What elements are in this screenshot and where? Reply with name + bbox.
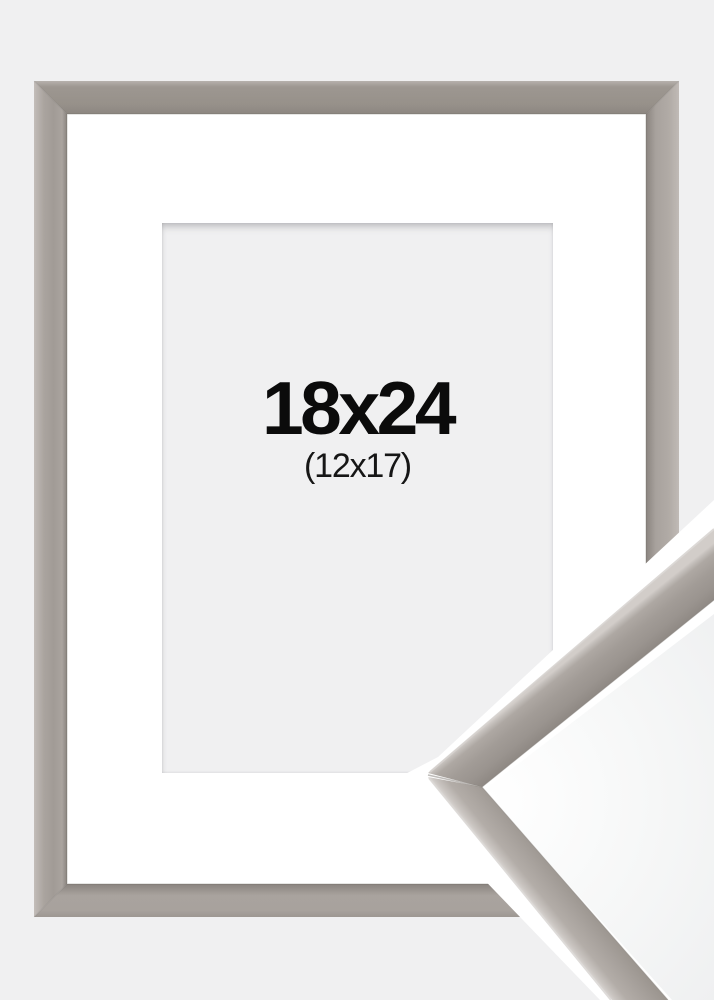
- frame-corner-sample: [0, 0, 714, 1000]
- frame-product-image: 18x24 (12x17): [0, 0, 714, 1000]
